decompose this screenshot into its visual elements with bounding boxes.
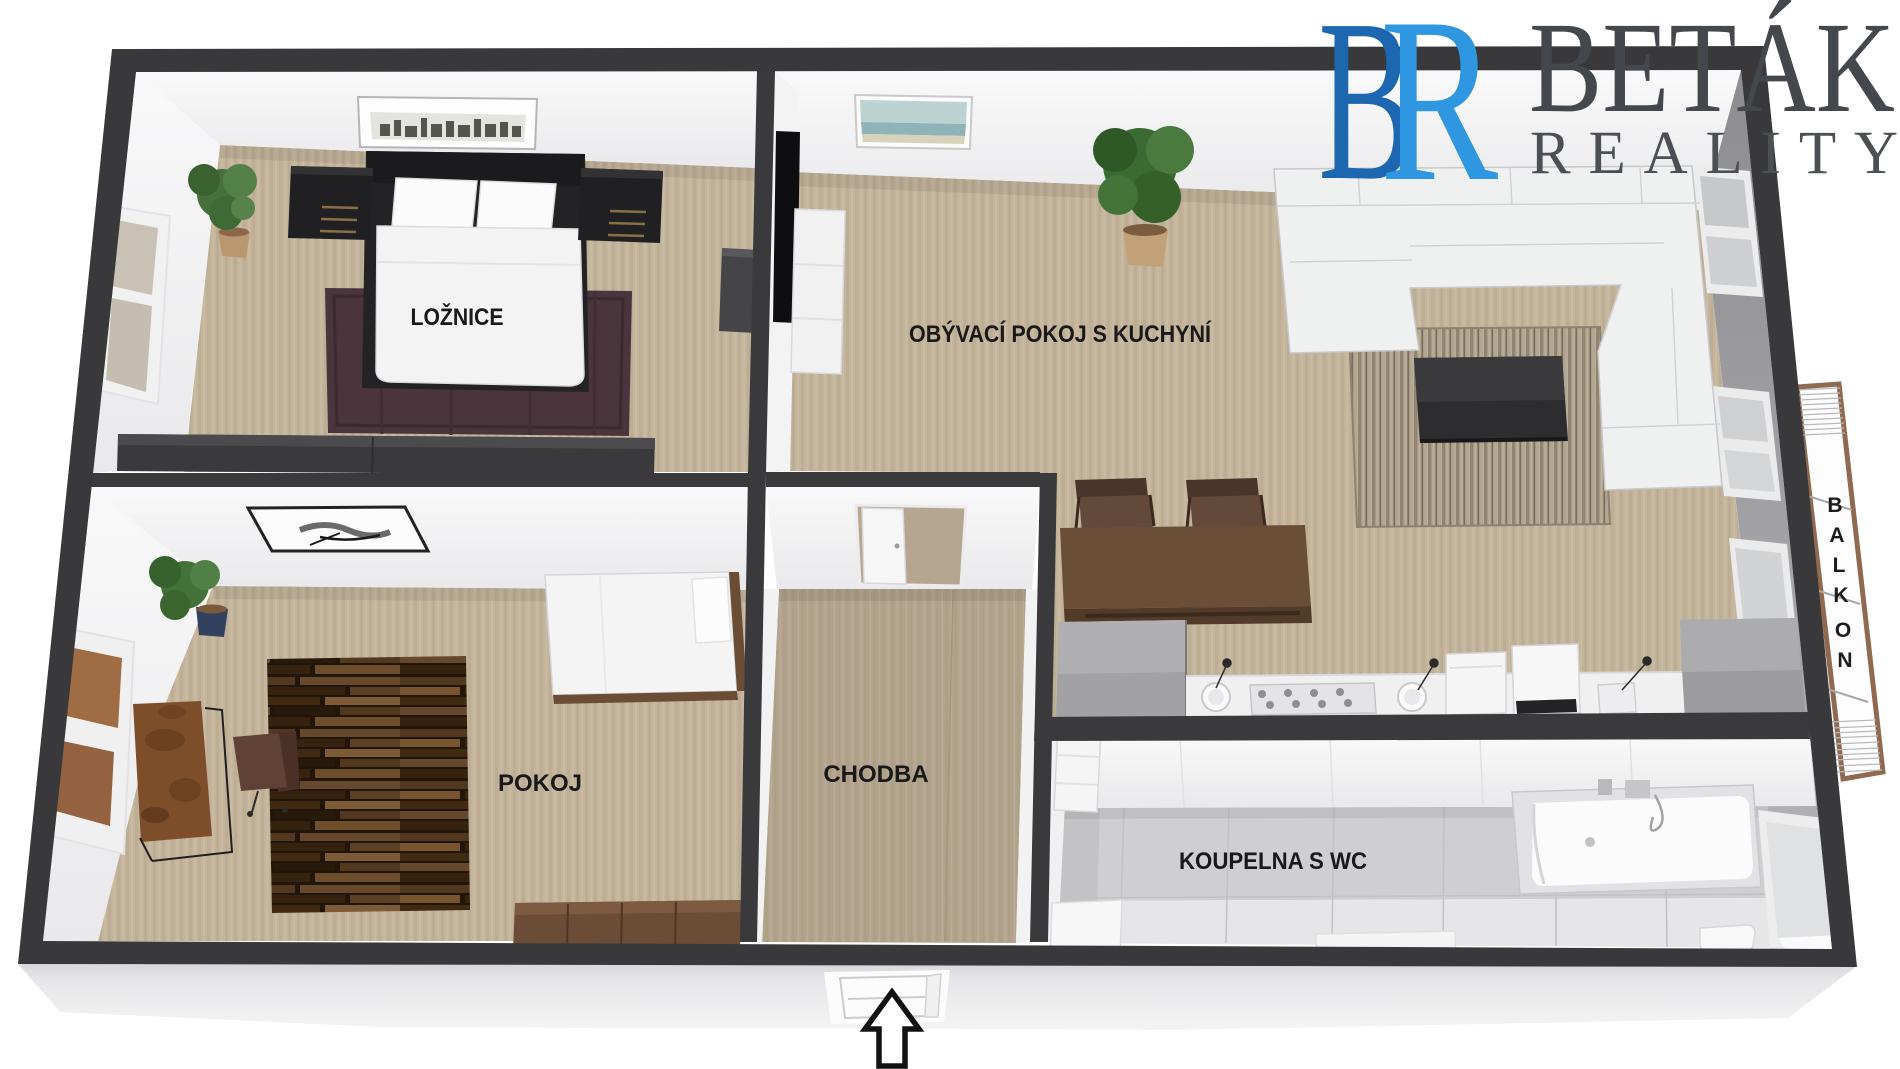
svg-text:B: B (1827, 494, 1842, 517)
svg-text:LOŽNICE: LOŽNICE (411, 303, 504, 331)
svg-text:O: O (1835, 619, 1851, 642)
svg-text:POKOJ: POKOJ (498, 770, 582, 797)
svg-text:OBÝVACÍ POKOJ S KUCHYNÍ: OBÝVACÍ POKOJ S KUCHYNÍ (909, 320, 1212, 348)
svg-text:N: N (1837, 649, 1852, 672)
svg-text:KOUPELNA S WC: KOUPELNA S WC (1179, 848, 1367, 875)
svg-text:CHODBA: CHODBA (823, 761, 928, 788)
svg-text:L: L (1833, 554, 1846, 577)
svg-text:R: R (1380, 0, 1498, 231)
svg-text:K: K (1833, 584, 1848, 607)
svg-text:A: A (1829, 524, 1844, 547)
svg-text:BETÁK: BETÁK (1529, 0, 1895, 140)
